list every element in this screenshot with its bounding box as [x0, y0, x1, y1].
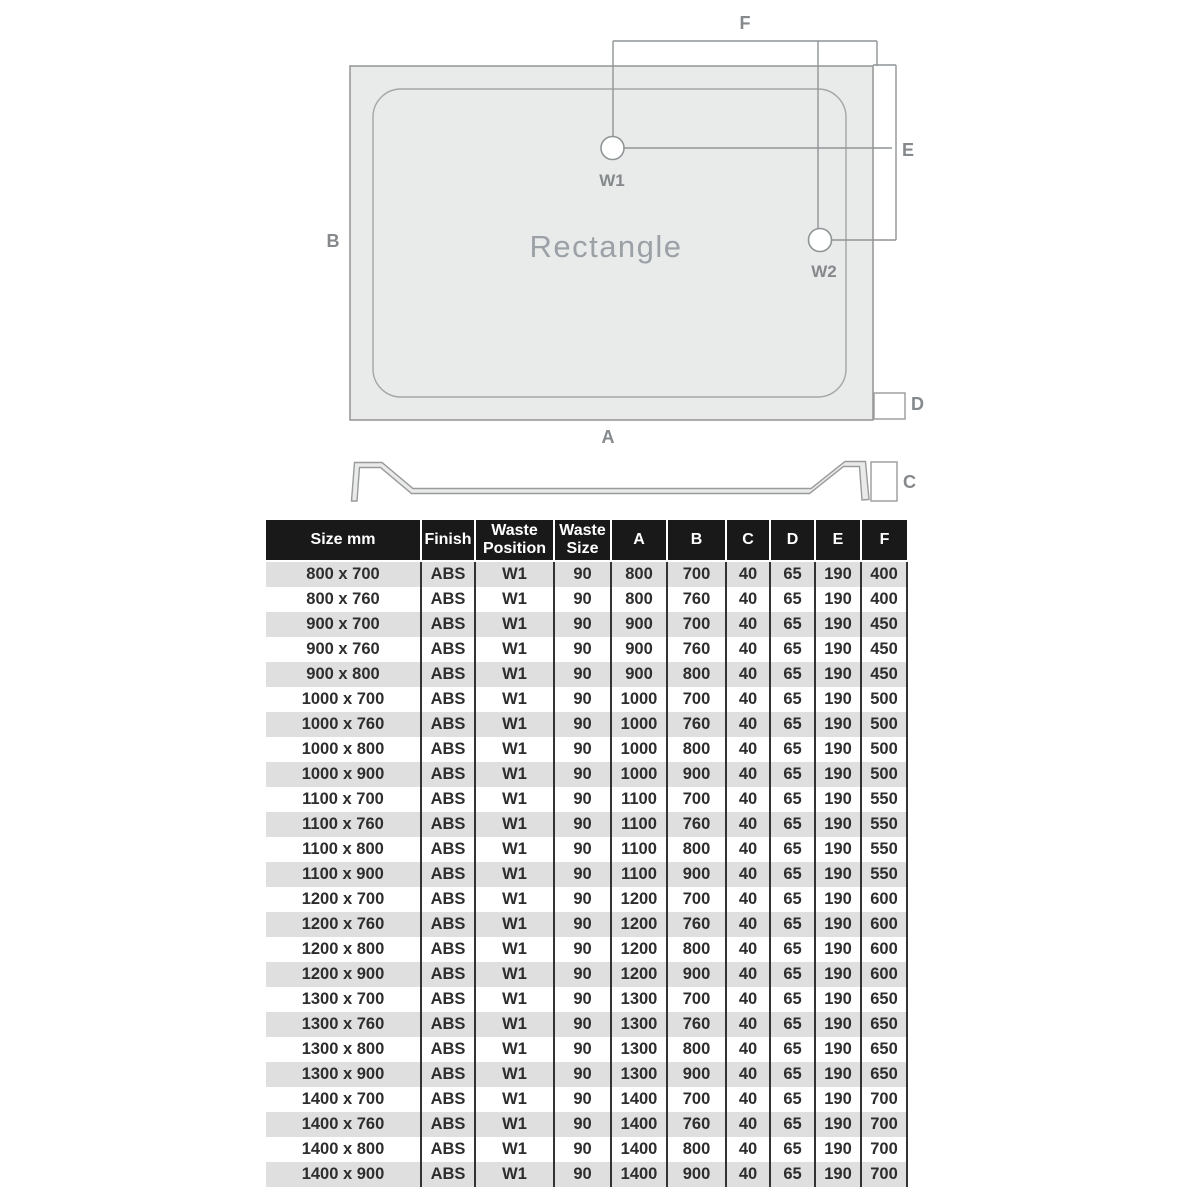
- table-row: 1300 x 900ABSW19013009004065190650: [266, 1062, 907, 1087]
- cell-f: 500: [861, 737, 907, 762]
- cell-a: 1300: [611, 987, 667, 1012]
- cell-e: 190: [815, 1062, 861, 1087]
- cell-b: 760: [667, 712, 726, 737]
- cell-c: 40: [726, 687, 770, 712]
- cell-finish: ABS: [421, 1062, 475, 1087]
- cell-waste-position: W1: [475, 887, 554, 912]
- cell-d: 65: [770, 1062, 815, 1087]
- cell-waste-size: 90: [554, 1112, 611, 1137]
- cell-finish: ABS: [421, 737, 475, 762]
- cell-waste-size: 90: [554, 612, 611, 637]
- cell-b: 800: [667, 662, 726, 687]
- cell-a: 1200: [611, 912, 667, 937]
- cell-size-mm: 800 x 700: [266, 561, 421, 587]
- cell-b: 700: [667, 887, 726, 912]
- cell-f: 400: [861, 561, 907, 587]
- cell-a: 800: [611, 587, 667, 612]
- cell-e: 190: [815, 737, 861, 762]
- cell-e: 190: [815, 937, 861, 962]
- cell-waste-size: 90: [554, 937, 611, 962]
- cell-e: 190: [815, 762, 861, 787]
- cell-e: 190: [815, 887, 861, 912]
- cell-a: 1000: [611, 737, 667, 762]
- cell-waste-position: W1: [475, 1137, 554, 1162]
- cell-finish: ABS: [421, 837, 475, 862]
- cell-finish: ABS: [421, 987, 475, 1012]
- cell-waste-position: W1: [475, 912, 554, 937]
- cell-finish: ABS: [421, 912, 475, 937]
- cell-d: 65: [770, 837, 815, 862]
- cell-waste-size: 90: [554, 662, 611, 687]
- table-row: 1200 x 700ABSW19012007004065190600: [266, 887, 907, 912]
- cell-a: 1100: [611, 837, 667, 862]
- cell-f: 650: [861, 987, 907, 1012]
- cell-waste-size: 90: [554, 1087, 611, 1112]
- cell-waste-position: W1: [475, 787, 554, 812]
- cell-a: 1100: [611, 862, 667, 887]
- cell-b: 800: [667, 937, 726, 962]
- cell-finish: ABS: [421, 662, 475, 687]
- cell-d: 65: [770, 561, 815, 587]
- cell-c: 40: [726, 662, 770, 687]
- cell-d: 65: [770, 1087, 815, 1112]
- cell-e: 190: [815, 662, 861, 687]
- cell-size-mm: 1200 x 900: [266, 962, 421, 987]
- cell-f: 400: [861, 587, 907, 612]
- cell-waste-position: W1: [475, 862, 554, 887]
- cell-e: 190: [815, 687, 861, 712]
- cell-finish: ABS: [421, 637, 475, 662]
- table-row: 1400 x 800ABSW19014008004065190700: [266, 1137, 907, 1162]
- cell-f: 500: [861, 712, 907, 737]
- cell-f: 700: [861, 1162, 907, 1187]
- cell-waste-position: W1: [475, 987, 554, 1012]
- table-row: 800 x 760ABSW1908007604065190400: [266, 587, 907, 612]
- cell-finish: ABS: [421, 1137, 475, 1162]
- cell-waste-size: 90: [554, 587, 611, 612]
- table-row: 1000 x 800ABSW19010008004065190500: [266, 737, 907, 762]
- cell-d: 65: [770, 637, 815, 662]
- cell-d: 65: [770, 912, 815, 937]
- cell-waste-size: 90: [554, 1012, 611, 1037]
- dim-label-b: B: [327, 231, 340, 251]
- table-row: 1000 x 760ABSW19010007604065190500: [266, 712, 907, 737]
- cell-waste-size: 90: [554, 887, 611, 912]
- cell-size-mm: 900 x 760: [266, 637, 421, 662]
- cell-finish: ABS: [421, 712, 475, 737]
- column-header-b: B: [667, 520, 726, 561]
- cell-a: 1400: [611, 1087, 667, 1112]
- diagram-svg: F B E D C A W1 W2 Rectangle: [0, 0, 1200, 518]
- table-row: 1400 x 760ABSW19014007604065190700: [266, 1112, 907, 1137]
- cell-b: 760: [667, 812, 726, 837]
- cell-f: 450: [861, 662, 907, 687]
- table-row: 1100 x 900ABSW19011009004065190550: [266, 862, 907, 887]
- cell-e: 190: [815, 587, 861, 612]
- cell-waste-size: 90: [554, 862, 611, 887]
- cell-waste-position: W1: [475, 962, 554, 987]
- cell-finish: ABS: [421, 561, 475, 587]
- cell-e: 190: [815, 712, 861, 737]
- cell-size-mm: 1200 x 800: [266, 937, 421, 962]
- cell-c: 40: [726, 862, 770, 887]
- cell-f: 550: [861, 812, 907, 837]
- cell-f: 600: [861, 912, 907, 937]
- table-row: 1200 x 760ABSW19012007604065190600: [266, 912, 907, 937]
- waste-w2-circle: [809, 229, 832, 252]
- cell-f: 700: [861, 1087, 907, 1112]
- cell-waste-position: W1: [475, 712, 554, 737]
- cell-f: 450: [861, 612, 907, 637]
- cell-waste-position: W1: [475, 1037, 554, 1062]
- cell-c: 40: [726, 1087, 770, 1112]
- cell-finish: ABS: [421, 587, 475, 612]
- cell-e: 190: [815, 812, 861, 837]
- cell-b: 700: [667, 612, 726, 637]
- cell-f: 500: [861, 687, 907, 712]
- cell-c: 40: [726, 587, 770, 612]
- cell-finish: ABS: [421, 787, 475, 812]
- cell-a: 900: [611, 637, 667, 662]
- cell-b: 760: [667, 587, 726, 612]
- cell-size-mm: 1000 x 700: [266, 687, 421, 712]
- table-row: 1100 x 760ABSW19011007604065190550: [266, 812, 907, 837]
- column-header-finish: Finish: [421, 520, 475, 561]
- cell-finish: ABS: [421, 887, 475, 912]
- cell-c: 40: [726, 1012, 770, 1037]
- cell-f: 550: [861, 787, 907, 812]
- cell-a: 900: [611, 612, 667, 637]
- cell-b: 700: [667, 1087, 726, 1112]
- cell-b: 800: [667, 837, 726, 862]
- cell-size-mm: 1400 x 760: [266, 1112, 421, 1137]
- cell-waste-size: 90: [554, 787, 611, 812]
- cell-c: 40: [726, 837, 770, 862]
- dim-label-d: D: [911, 394, 924, 414]
- cell-e: 190: [815, 787, 861, 812]
- table-row: 1000 x 900ABSW19010009004065190500: [266, 762, 907, 787]
- cell-c: 40: [726, 1137, 770, 1162]
- cell-finish: ABS: [421, 687, 475, 712]
- table-row: 1100 x 700ABSW19011007004065190550: [266, 787, 907, 812]
- dim-d-box: [874, 393, 905, 419]
- cell-waste-position: W1: [475, 737, 554, 762]
- cell-f: 600: [861, 962, 907, 987]
- cell-finish: ABS: [421, 1162, 475, 1187]
- cell-c: 40: [726, 887, 770, 912]
- cell-waste-size: 90: [554, 987, 611, 1012]
- cell-b: 700: [667, 687, 726, 712]
- column-header-waste-position: Waste Position: [475, 520, 554, 561]
- cell-a: 1000: [611, 687, 667, 712]
- cell-size-mm: 1300 x 700: [266, 987, 421, 1012]
- cell-b: 900: [667, 962, 726, 987]
- table-row: 800 x 700ABSW1908007004065190400: [266, 561, 907, 587]
- cell-b: 700: [667, 561, 726, 587]
- cell-size-mm: 1100 x 800: [266, 837, 421, 862]
- cell-d: 65: [770, 862, 815, 887]
- cell-e: 190: [815, 1037, 861, 1062]
- cell-e: 190: [815, 1162, 861, 1187]
- cell-f: 600: [861, 937, 907, 962]
- cell-d: 65: [770, 1137, 815, 1162]
- cell-size-mm: 1300 x 800: [266, 1037, 421, 1062]
- table-row: 900 x 800ABSW1909008004065190450: [266, 662, 907, 687]
- cell-waste-size: 90: [554, 912, 611, 937]
- dim-label-f: F: [740, 13, 751, 33]
- cell-c: 40: [726, 1112, 770, 1137]
- cell-c: 40: [726, 912, 770, 937]
- cell-finish: ABS: [421, 1037, 475, 1062]
- cell-f: 500: [861, 762, 907, 787]
- cell-waste-position: W1: [475, 561, 554, 587]
- cell-waste-size: 90: [554, 837, 611, 862]
- cell-finish: ABS: [421, 1087, 475, 1112]
- cell-d: 65: [770, 762, 815, 787]
- cell-waste-position: W1: [475, 762, 554, 787]
- cell-waste-size: 90: [554, 1062, 611, 1087]
- table-row: 1300 x 700ABSW19013007004065190650: [266, 987, 907, 1012]
- cell-f: 550: [861, 837, 907, 862]
- cell-e: 190: [815, 912, 861, 937]
- column-header-f: F: [861, 520, 907, 561]
- cell-waste-size: 90: [554, 1162, 611, 1187]
- cell-waste-size: 90: [554, 962, 611, 987]
- cell-a: 1400: [611, 1162, 667, 1187]
- waste-w1-circle: [601, 137, 624, 160]
- cell-a: 1100: [611, 812, 667, 837]
- cell-f: 650: [861, 1062, 907, 1087]
- cell-d: 65: [770, 687, 815, 712]
- cell-b: 760: [667, 1012, 726, 1037]
- cell-waste-size: 90: [554, 737, 611, 762]
- table-row: 1300 x 800ABSW19013008004065190650: [266, 1037, 907, 1062]
- cell-a: 1200: [611, 937, 667, 962]
- table-row: 1200 x 900ABSW19012009004065190600: [266, 962, 907, 987]
- cell-b: 760: [667, 912, 726, 937]
- cell-d: 65: [770, 1012, 815, 1037]
- cell-c: 40: [726, 612, 770, 637]
- cell-e: 190: [815, 612, 861, 637]
- cell-size-mm: 1400 x 900: [266, 1162, 421, 1187]
- cell-f: 550: [861, 862, 907, 887]
- dim-label-a: A: [602, 427, 615, 447]
- table-body: 800 x 700ABSW1908007004065190400800 x 76…: [266, 561, 907, 1187]
- cell-b: 800: [667, 737, 726, 762]
- cell-waste-position: W1: [475, 612, 554, 637]
- cell-size-mm: 1300 x 760: [266, 1012, 421, 1037]
- column-header-waste-size: Waste Size: [554, 520, 611, 561]
- cell-c: 40: [726, 762, 770, 787]
- cell-size-mm: 1100 x 760: [266, 812, 421, 837]
- cell-a: 900: [611, 662, 667, 687]
- cell-size-mm: 1400 x 700: [266, 1087, 421, 1112]
- cell-e: 190: [815, 1112, 861, 1137]
- column-header-c: C: [726, 520, 770, 561]
- cell-c: 40: [726, 937, 770, 962]
- cell-d: 65: [770, 937, 815, 962]
- cell-e: 190: [815, 987, 861, 1012]
- cell-waste-size: 90: [554, 1137, 611, 1162]
- cell-size-mm: 1100 x 700: [266, 787, 421, 812]
- cell-d: 65: [770, 662, 815, 687]
- cell-size-mm: 1200 x 700: [266, 887, 421, 912]
- cell-c: 40: [726, 712, 770, 737]
- cell-finish: ABS: [421, 812, 475, 837]
- cell-f: 700: [861, 1112, 907, 1137]
- cell-d: 65: [770, 612, 815, 637]
- cell-waste-position: W1: [475, 1087, 554, 1112]
- shower-tray-spec-page: F B E D C A W1 W2 Rectangle Size mmFinis…: [0, 0, 1200, 1200]
- cell-waste-position: W1: [475, 662, 554, 687]
- cell-b: 800: [667, 1137, 726, 1162]
- cell-d: 65: [770, 737, 815, 762]
- cell-size-mm: 900 x 800: [266, 662, 421, 687]
- cell-c: 40: [726, 987, 770, 1012]
- cell-size-mm: 1400 x 800: [266, 1137, 421, 1162]
- cell-finish: ABS: [421, 762, 475, 787]
- table-header-row: Size mmFinishWaste PositionWaste SizeABC…: [266, 520, 907, 561]
- cell-a: 1300: [611, 1012, 667, 1037]
- table-row: 1400 x 900ABSW19014009004065190700: [266, 1162, 907, 1187]
- cell-e: 190: [815, 561, 861, 587]
- cell-a: 1400: [611, 1112, 667, 1137]
- column-header-d: D: [770, 520, 815, 561]
- cell-finish: ABS: [421, 612, 475, 637]
- cell-d: 65: [770, 812, 815, 837]
- cell-waste-size: 90: [554, 762, 611, 787]
- tray-shape-title: Rectangle: [529, 229, 682, 264]
- cell-waste-position: W1: [475, 1112, 554, 1137]
- cell-a: 1200: [611, 887, 667, 912]
- cell-b: 760: [667, 1112, 726, 1137]
- cell-e: 190: [815, 837, 861, 862]
- table-row: 900 x 700ABSW1909007004065190450: [266, 612, 907, 637]
- cell-b: 900: [667, 862, 726, 887]
- column-header-size-mm: Size mm: [266, 520, 421, 561]
- size-spec-table: Size mmFinishWaste PositionWaste SizeABC…: [266, 520, 908, 1187]
- cell-waste-position: W1: [475, 812, 554, 837]
- column-header-e: E: [815, 520, 861, 561]
- cell-b: 700: [667, 987, 726, 1012]
- cell-c: 40: [726, 787, 770, 812]
- cell-f: 700: [861, 1137, 907, 1162]
- cell-c: 40: [726, 637, 770, 662]
- cell-f: 450: [861, 637, 907, 662]
- cell-d: 65: [770, 887, 815, 912]
- cell-a: 1300: [611, 1062, 667, 1087]
- dim-c-box: [871, 462, 897, 501]
- cell-c: 40: [726, 737, 770, 762]
- cell-waste-position: W1: [475, 1012, 554, 1037]
- cell-waste-size: 90: [554, 687, 611, 712]
- cell-c: 40: [726, 812, 770, 837]
- cell-waste-size: 90: [554, 561, 611, 587]
- cell-a: 1100: [611, 787, 667, 812]
- cell-f: 650: [861, 1037, 907, 1062]
- cell-b: 700: [667, 787, 726, 812]
- cell-f: 650: [861, 1012, 907, 1037]
- table-row: 1000 x 700ABSW19010007004065190500: [266, 687, 907, 712]
- cell-d: 65: [770, 787, 815, 812]
- cell-c: 40: [726, 561, 770, 587]
- cell-waste-size: 90: [554, 812, 611, 837]
- cell-size-mm: 1300 x 900: [266, 1062, 421, 1087]
- cell-size-mm: 1000 x 900: [266, 762, 421, 787]
- cell-b: 900: [667, 1062, 726, 1087]
- cell-e: 190: [815, 862, 861, 887]
- cell-a: 1300: [611, 1037, 667, 1062]
- waste-w1-label: W1: [599, 171, 625, 190]
- cell-waste-size: 90: [554, 1037, 611, 1062]
- cell-waste-position: W1: [475, 587, 554, 612]
- cell-size-mm: 1000 x 760: [266, 712, 421, 737]
- tray-profile-shape: [352, 462, 870, 502]
- cell-size-mm: 1000 x 800: [266, 737, 421, 762]
- cell-waste-position: W1: [475, 1062, 554, 1087]
- cell-finish: ABS: [421, 862, 475, 887]
- cell-a: 1200: [611, 962, 667, 987]
- cell-b: 760: [667, 637, 726, 662]
- cell-finish: ABS: [421, 1112, 475, 1137]
- table-row: 1100 x 800ABSW19011008004065190550: [266, 837, 907, 862]
- cell-size-mm: 800 x 760: [266, 587, 421, 612]
- cell-a: 1000: [611, 712, 667, 737]
- dim-label-e: E: [902, 140, 914, 160]
- cell-c: 40: [726, 1037, 770, 1062]
- cell-e: 190: [815, 1087, 861, 1112]
- cell-d: 65: [770, 1112, 815, 1137]
- cell-d: 65: [770, 987, 815, 1012]
- cell-a: 800: [611, 561, 667, 587]
- cell-finish: ABS: [421, 962, 475, 987]
- table-header: Size mmFinishWaste PositionWaste SizeABC…: [266, 520, 907, 561]
- cell-c: 40: [726, 962, 770, 987]
- cell-waste-position: W1: [475, 837, 554, 862]
- cell-size-mm: 900 x 700: [266, 612, 421, 637]
- cell-finish: ABS: [421, 1012, 475, 1037]
- cell-a: 1400: [611, 1137, 667, 1162]
- cell-b: 900: [667, 762, 726, 787]
- cell-b: 900: [667, 1162, 726, 1187]
- cell-finish: ABS: [421, 937, 475, 962]
- cell-f: 600: [861, 887, 907, 912]
- cell-c: 40: [726, 1062, 770, 1087]
- cell-waste-size: 90: [554, 637, 611, 662]
- dim-label-c: C: [903, 472, 916, 492]
- waste-w2-label: W2: [811, 262, 837, 281]
- table-row: 1400 x 700ABSW19014007004065190700: [266, 1087, 907, 1112]
- cell-d: 65: [770, 1162, 815, 1187]
- cell-d: 65: [770, 712, 815, 737]
- cell-e: 190: [815, 637, 861, 662]
- cell-e: 190: [815, 1012, 861, 1037]
- table-row: 900 x 760ABSW1909007604065190450: [266, 637, 907, 662]
- cell-e: 190: [815, 1137, 861, 1162]
- cell-d: 65: [770, 962, 815, 987]
- cell-waste-position: W1: [475, 637, 554, 662]
- cell-waste-position: W1: [475, 687, 554, 712]
- cell-waste-position: W1: [475, 937, 554, 962]
- cell-waste-position: W1: [475, 1162, 554, 1187]
- cell-a: 1000: [611, 762, 667, 787]
- tray-dimension-diagram: F B E D C A W1 W2 Rectangle: [0, 0, 1200, 518]
- cell-size-mm: 1100 x 900: [266, 862, 421, 887]
- cell-size-mm: 1200 x 760: [266, 912, 421, 937]
- cell-e: 190: [815, 962, 861, 987]
- cell-waste-size: 90: [554, 712, 611, 737]
- table-row: 1300 x 760ABSW19013007604065190650: [266, 1012, 907, 1037]
